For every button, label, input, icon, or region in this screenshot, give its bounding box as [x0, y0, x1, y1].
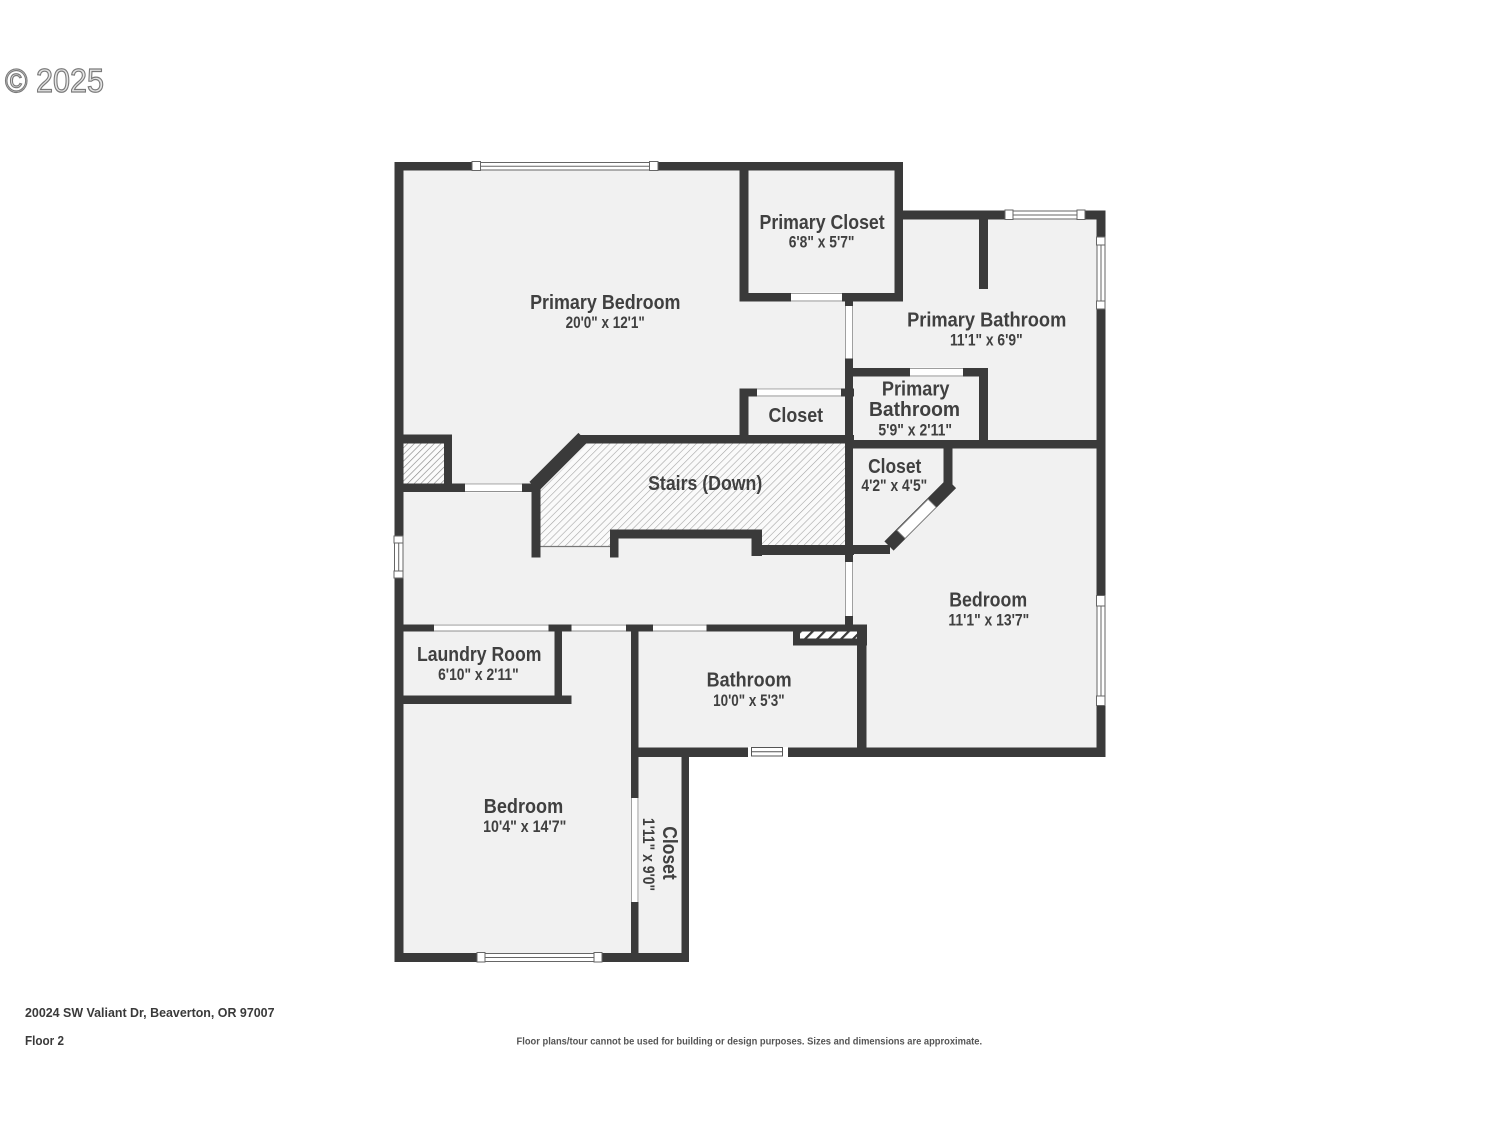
svg-text:Closet: Closet [769, 405, 824, 427]
svg-text:Laundry Room: Laundry Room [417, 644, 542, 666]
svg-text:11'1" x 13'7": 11'1" x 13'7" [948, 612, 1029, 630]
svg-text:6'10" x 2'11": 6'10" x 2'11" [438, 666, 519, 684]
svg-text:Closet: Closet [868, 456, 921, 478]
svg-text:11'1" x 6'9": 11'1" x 6'9" [950, 332, 1023, 350]
svg-text:10'4" x 14'7": 10'4" x 14'7" [483, 818, 566, 836]
svg-text:20024 SW Valiant Dr, Beaverton: 20024 SW Valiant Dr, Beaverton, OR 97007 [25, 1005, 275, 1020]
svg-text:20'0" x 12'1": 20'0" x 12'1" [566, 314, 645, 332]
svg-text:Stairs (Down): Stairs (Down) [648, 473, 762, 495]
svg-text:Bedroom: Bedroom [949, 590, 1027, 612]
svg-text:Bathroom: Bathroom [869, 399, 960, 421]
svg-text:Bedroom: Bedroom [484, 796, 563, 818]
svg-text:Bathroom: Bathroom [707, 670, 792, 692]
svg-text:4'2" x 4'5": 4'2" x 4'5" [861, 477, 927, 495]
svg-text:6'8" x 5'7": 6'8" x 5'7" [789, 234, 855, 252]
svg-text:10'0" x 5'3": 10'0" x 5'3" [713, 692, 785, 710]
svg-text:Primary Closet: Primary Closet [760, 212, 886, 234]
svg-text:Primary: Primary [882, 378, 950, 400]
svg-text:5'9" x 2'11": 5'9" x 2'11" [878, 422, 952, 440]
svg-text:Closet: Closet [658, 826, 680, 880]
svg-text:Primary Bathroom: Primary Bathroom [907, 310, 1066, 332]
svg-text:Primary Bedroom: Primary Bedroom [530, 292, 680, 314]
svg-text:© 2025: © 2025 [5, 62, 104, 99]
svg-text:1'11" x 9'0": 1'11" x 9'0" [639, 818, 657, 891]
svg-text:Floor plans/tour cannot be use: Floor plans/tour cannot be used for buil… [517, 1036, 983, 1048]
svg-text:Floor 2: Floor 2 [25, 1033, 64, 1048]
